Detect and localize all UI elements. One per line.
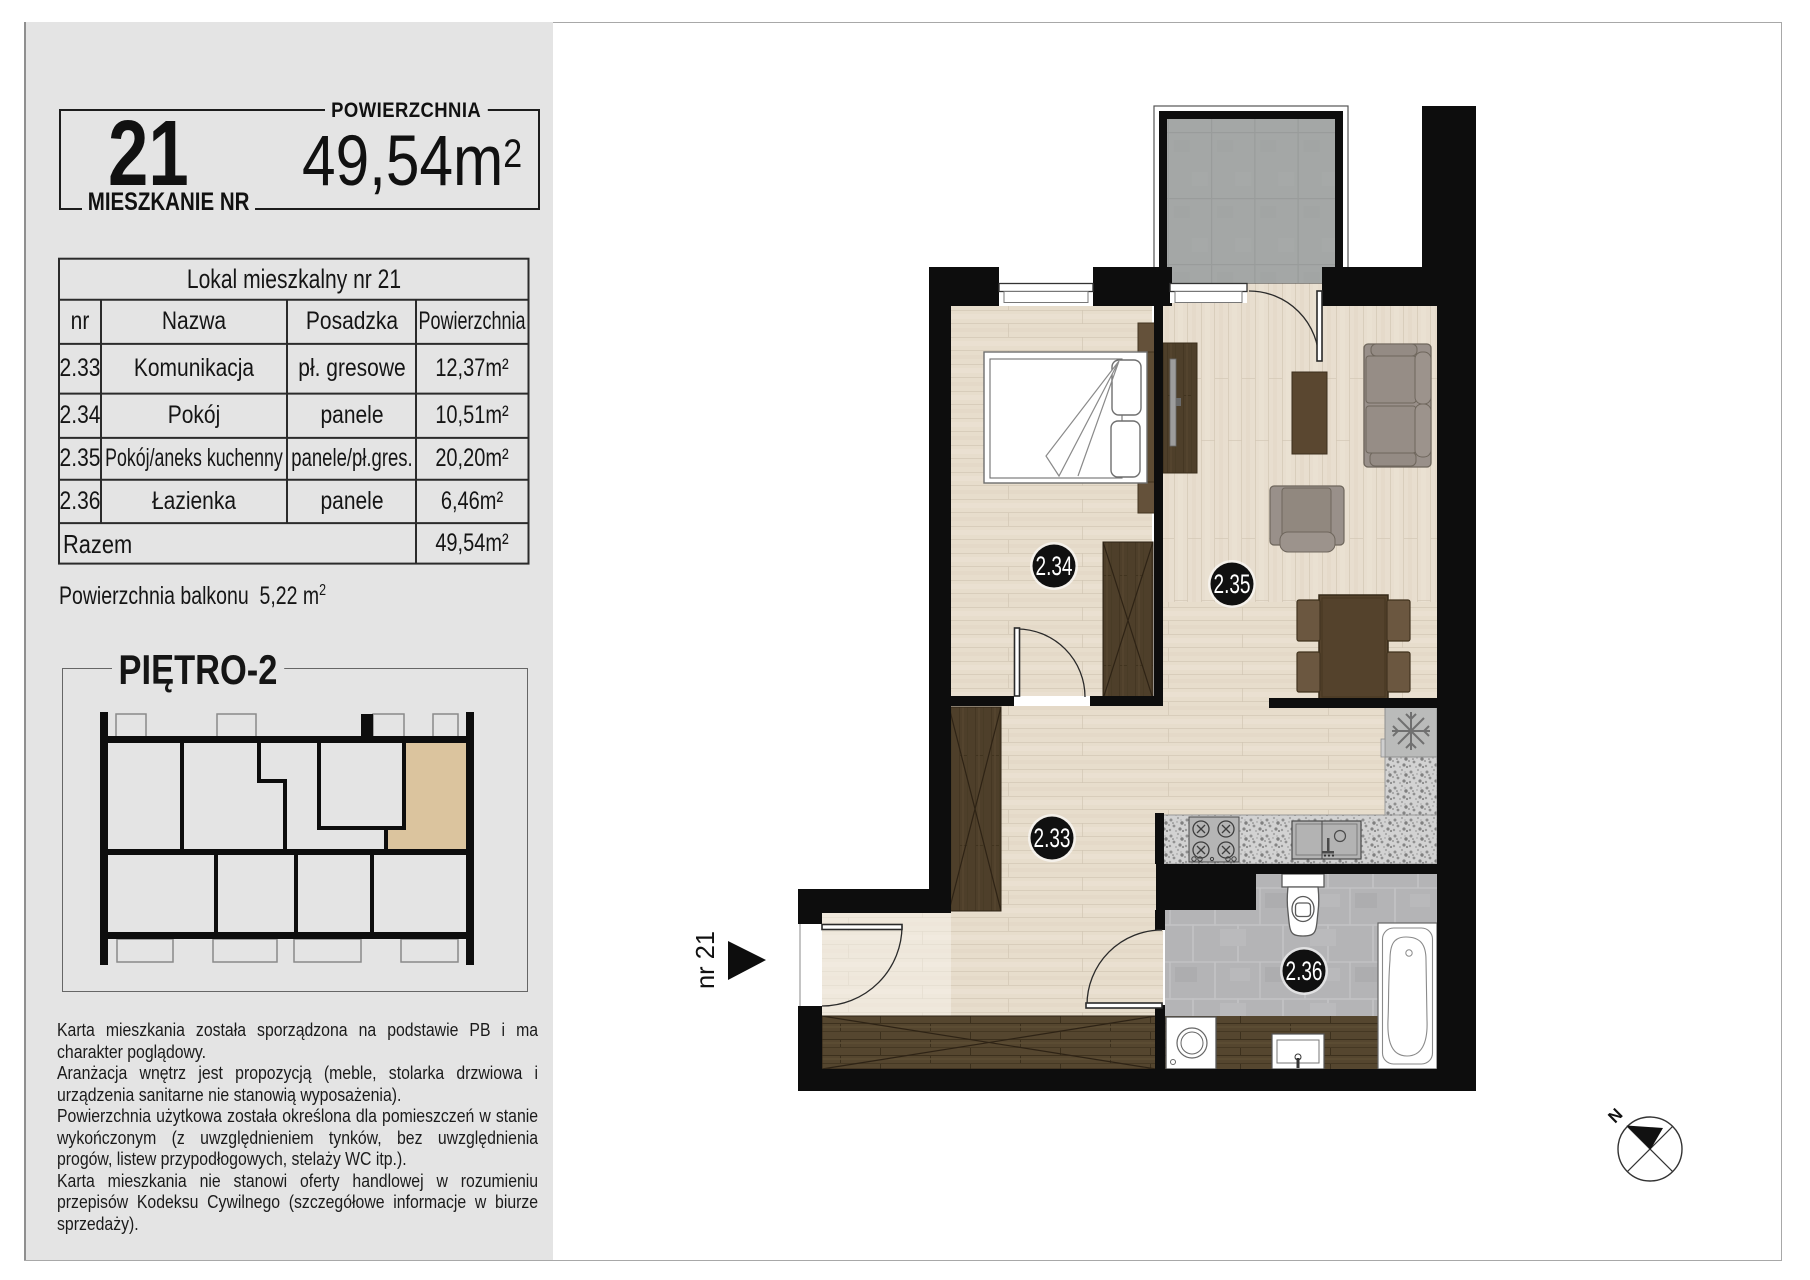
svg-text:2.34: 2.34 bbox=[1036, 551, 1073, 581]
svg-text:2.33: 2.33 bbox=[1034, 823, 1071, 853]
svg-text:N: N bbox=[1604, 1105, 1626, 1127]
svg-text:2.36: 2.36 bbox=[1286, 956, 1323, 986]
svg-text:nr 21: nr 21 bbox=[690, 931, 720, 989]
svg-text:2.35: 2.35 bbox=[1214, 569, 1251, 599]
